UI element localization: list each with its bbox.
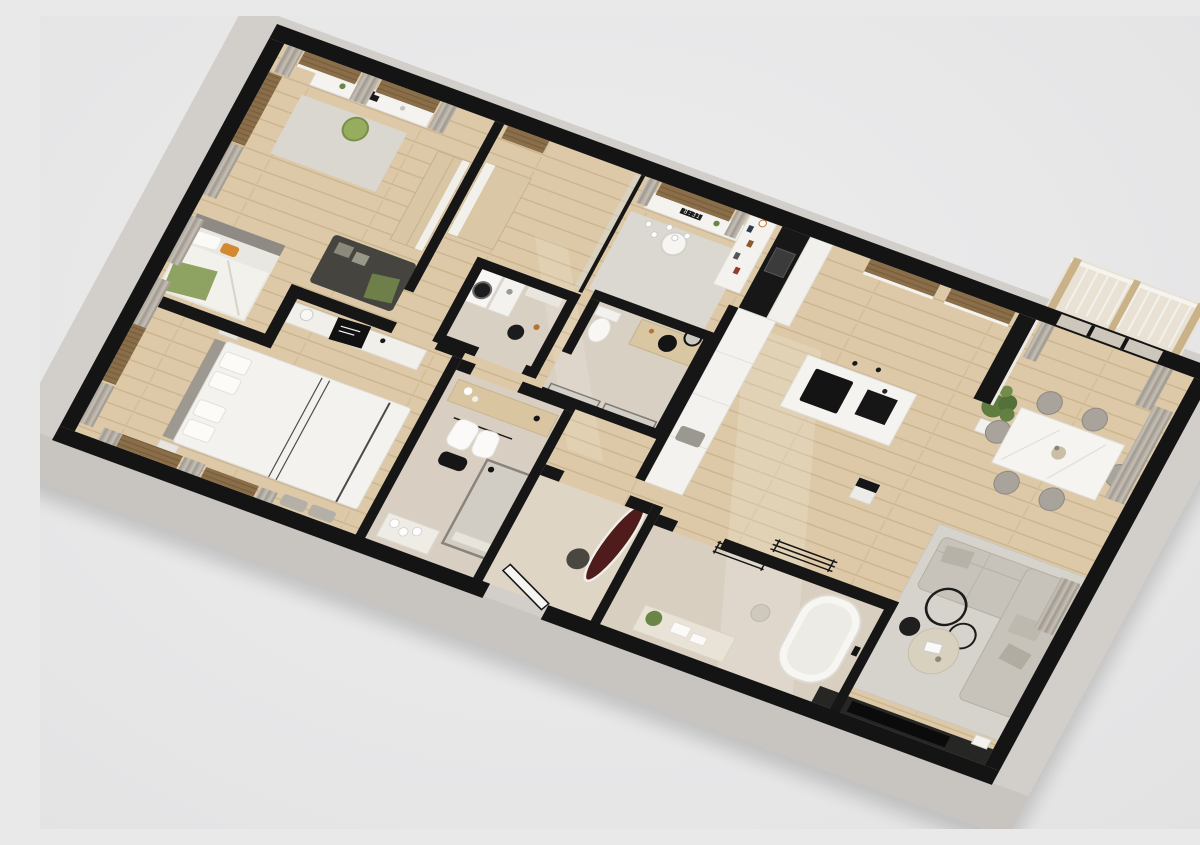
floorplan-svg: 8:31 <box>40 16 1200 829</box>
building: 8:31 <box>40 16 1200 829</box>
floorplan-render: 8:31 <box>40 16 1200 829</box>
